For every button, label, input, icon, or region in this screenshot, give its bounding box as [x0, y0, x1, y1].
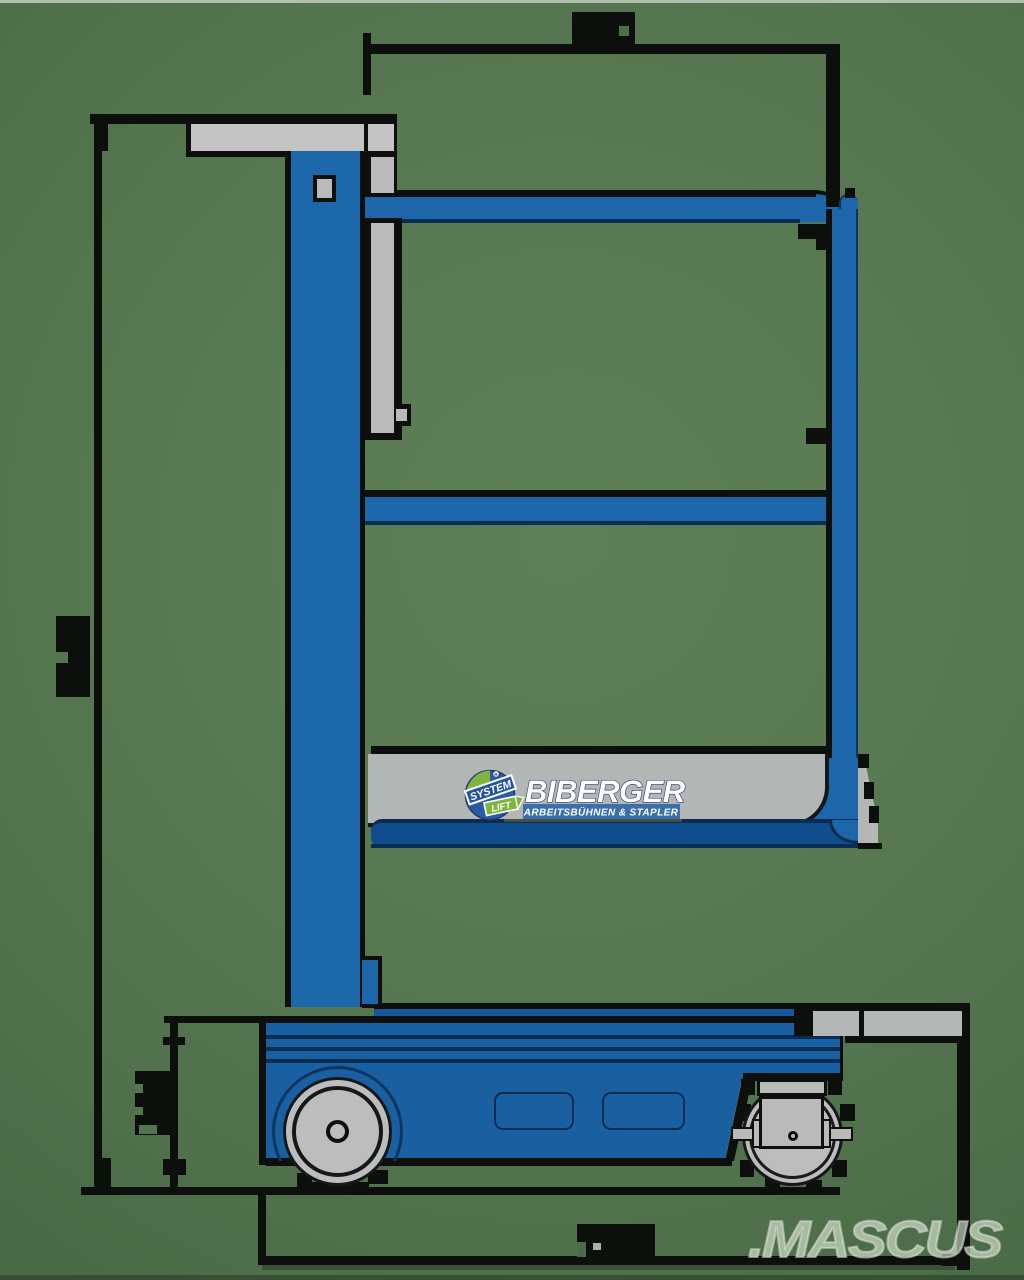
svg-text:BIBERGER: BIBERGER	[525, 774, 686, 809]
svg-text:ARBEITSBÜHNEN & STAPLER: ARBEITSBÜHNEN & STAPLER	[523, 807, 679, 819]
